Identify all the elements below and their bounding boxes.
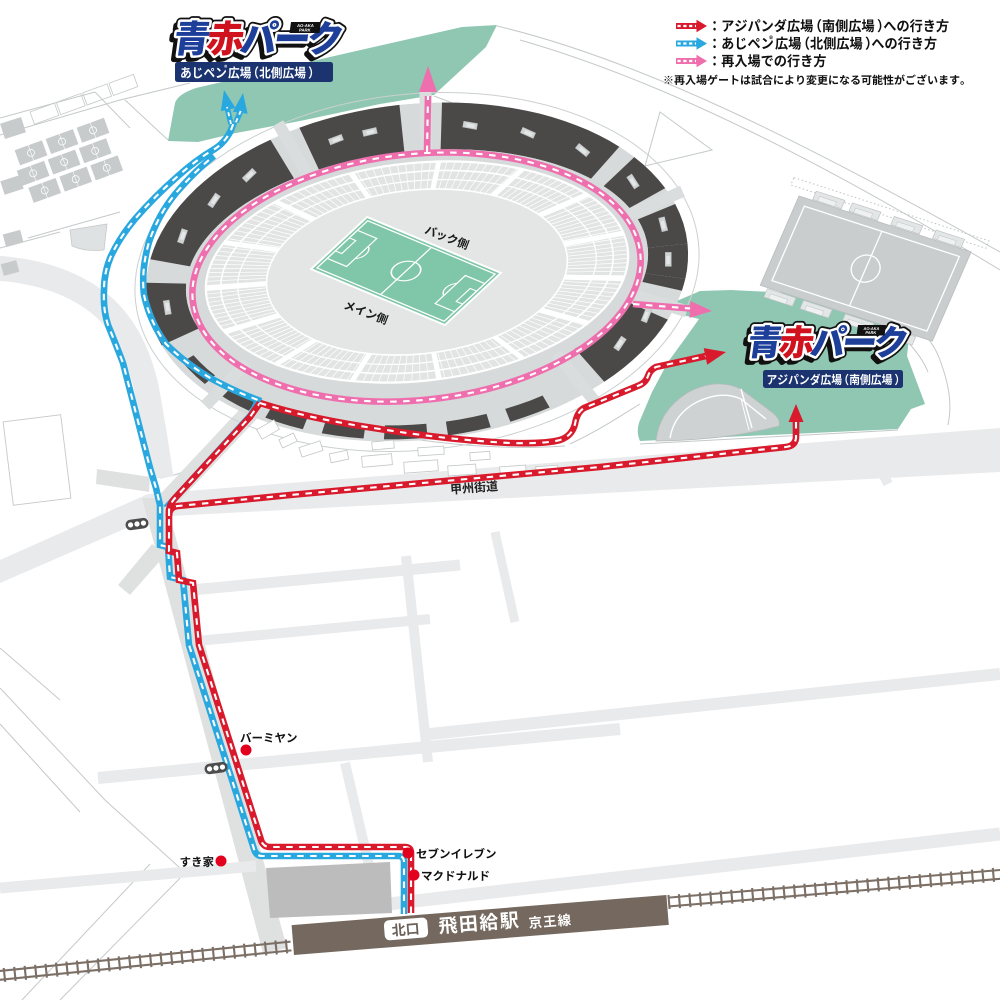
svg-text:PARK: PARK [865, 330, 877, 335]
svg-text:PARK: PARK [299, 28, 311, 33]
